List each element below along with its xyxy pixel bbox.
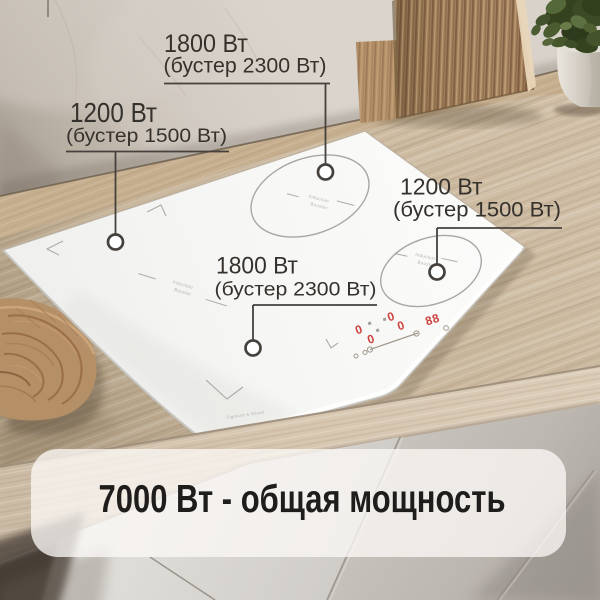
- svg-text:(бустер 2300 Вт): (бустер 2300 Вт): [164, 55, 327, 78]
- svg-text:7000 Вт - общая мощность: 7000 Вт - общая мощность: [99, 478, 506, 521]
- svg-text:1200 Вт: 1200 Вт: [400, 174, 483, 200]
- svg-text:1800 Вт: 1800 Вт: [216, 253, 298, 280]
- svg-text:1200 Вт: 1200 Вт: [70, 97, 157, 128]
- svg-text:(бустер 2300 Вт): (бустер 2300 Вт): [215, 279, 377, 301]
- svg-text:(бустер 1500 Вт): (бустер 1500 Вт): [66, 125, 227, 147]
- svg-text:(бустер 1500 Вт): (бустер 1500 Вт): [393, 199, 561, 222]
